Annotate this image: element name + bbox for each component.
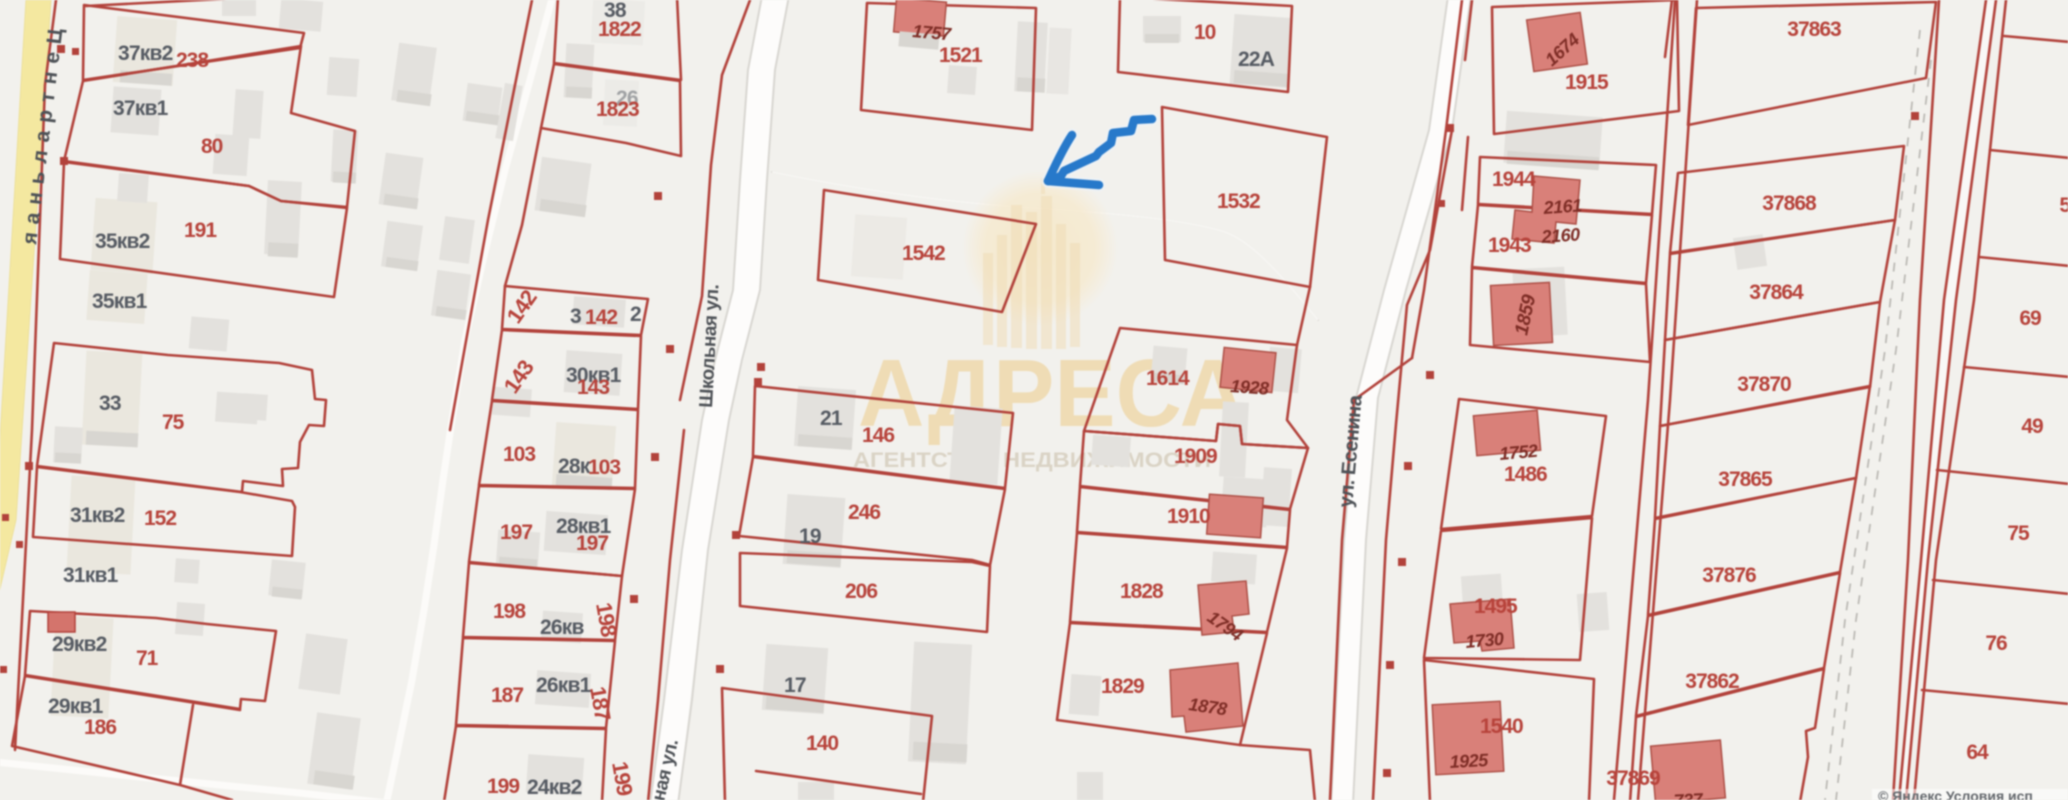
svg-text:142: 142 xyxy=(585,306,617,329)
svg-text:146: 146 xyxy=(862,424,894,447)
svg-text:37кв1: 37кв1 xyxy=(113,97,169,120)
svg-text:© Яндекс Условия исп: © Яндекс Условия исп xyxy=(1878,788,2033,800)
svg-text:19: 19 xyxy=(799,525,821,548)
svg-text:103: 103 xyxy=(503,443,535,466)
svg-text:1486: 1486 xyxy=(1504,463,1547,486)
svg-text:29кв1: 29кв1 xyxy=(48,695,104,718)
svg-text:199: 199 xyxy=(487,775,519,798)
svg-text:197: 197 xyxy=(500,521,532,544)
svg-text:1614: 1614 xyxy=(1146,367,1190,390)
svg-text:1829: 1829 xyxy=(1101,675,1144,698)
svg-text:1910: 1910 xyxy=(1167,505,1210,528)
svg-text:140: 140 xyxy=(806,732,838,755)
svg-text:21: 21 xyxy=(820,407,843,430)
svg-text:37865: 37865 xyxy=(1718,468,1773,491)
svg-text:1542: 1542 xyxy=(902,242,945,265)
svg-text:35кв2: 35кв2 xyxy=(95,230,150,253)
svg-text:1495: 1495 xyxy=(1474,595,1518,618)
svg-text:1915: 1915 xyxy=(1565,71,1609,94)
svg-text:22А: 22А xyxy=(1238,48,1275,71)
svg-text:АДРЕСА: АДРЕСА xyxy=(858,340,1246,447)
svg-text:69: 69 xyxy=(2019,307,2041,330)
svg-text:33: 33 xyxy=(99,392,121,415)
svg-text:37869: 37869 xyxy=(1606,767,1660,790)
svg-text:2160: 2160 xyxy=(1540,224,1581,247)
svg-text:75: 75 xyxy=(162,411,185,434)
svg-text:1540: 1540 xyxy=(1480,715,1523,738)
svg-text:64: 64 xyxy=(1966,741,1989,764)
svg-text:37862: 37862 xyxy=(1685,670,1739,693)
svg-text:3: 3 xyxy=(570,305,581,328)
svg-text:75: 75 xyxy=(2007,522,2030,545)
svg-text:37870: 37870 xyxy=(1737,373,1791,396)
svg-text:10: 10 xyxy=(1194,21,1216,44)
svg-text:37868: 37868 xyxy=(1762,192,1817,215)
svg-text:31кв2: 31кв2 xyxy=(70,504,125,527)
svg-text:1822: 1822 xyxy=(598,18,641,41)
svg-text:37863: 37863 xyxy=(1787,18,1841,41)
svg-text:71: 71 xyxy=(136,647,159,670)
svg-text:152: 152 xyxy=(144,507,176,530)
svg-text:28к: 28к xyxy=(558,455,591,478)
svg-text:1823: 1823 xyxy=(596,98,639,121)
svg-text:2161: 2161 xyxy=(1542,195,1583,218)
svg-text:АГЕНТСТВО НЕДВИЖИМОСТИ: АГЕНТСТВО НЕДВИЖИМОСТИ xyxy=(853,449,1211,472)
svg-text:29кв2: 29кв2 xyxy=(52,633,107,656)
svg-text:26кв1: 26кв1 xyxy=(536,674,592,697)
svg-text:186: 186 xyxy=(84,716,116,739)
svg-text:1730: 1730 xyxy=(1465,629,1505,652)
svg-text:191: 191 xyxy=(184,219,217,242)
svg-text:24кв2: 24кв2 xyxy=(527,776,582,799)
svg-text:1925: 1925 xyxy=(1449,750,1490,772)
svg-text:17: 17 xyxy=(784,674,806,697)
svg-text:1944: 1944 xyxy=(1492,168,1536,191)
svg-text:1909: 1909 xyxy=(1174,445,1217,468)
svg-text:187: 187 xyxy=(491,684,523,707)
svg-text:1532: 1532 xyxy=(1217,190,1260,213)
svg-text:37кв2: 37кв2 xyxy=(118,42,173,65)
svg-text:197: 197 xyxy=(576,532,608,555)
svg-text:35кв1: 35кв1 xyxy=(92,290,148,313)
svg-text:1928: 1928 xyxy=(1230,376,1270,399)
svg-text:1757: 1757 xyxy=(912,21,953,44)
svg-text:51: 51 xyxy=(2059,194,2068,217)
svg-text:198: 198 xyxy=(493,600,526,623)
svg-text:737: 737 xyxy=(1673,789,1704,800)
svg-text:246: 246 xyxy=(848,501,880,524)
svg-text:1943: 1943 xyxy=(1488,234,1531,257)
svg-text:37864: 37864 xyxy=(1749,281,1804,304)
svg-text:37876: 37876 xyxy=(1702,564,1756,587)
svg-text:31кв1: 31кв1 xyxy=(63,564,119,587)
svg-text:1521: 1521 xyxy=(939,44,983,67)
svg-text:1752: 1752 xyxy=(1499,441,1539,464)
svg-text:26кв: 26кв xyxy=(540,616,584,639)
svg-text:238: 238 xyxy=(176,49,209,72)
svg-text:80: 80 xyxy=(201,135,223,158)
svg-text:2: 2 xyxy=(630,303,641,326)
svg-text:206: 206 xyxy=(845,580,877,603)
svg-text:76: 76 xyxy=(1985,632,2007,655)
svg-text:143: 143 xyxy=(577,376,609,399)
svg-text:49: 49 xyxy=(2021,415,2043,438)
svg-text:1828: 1828 xyxy=(1120,580,1164,603)
svg-text:103: 103 xyxy=(588,456,620,479)
